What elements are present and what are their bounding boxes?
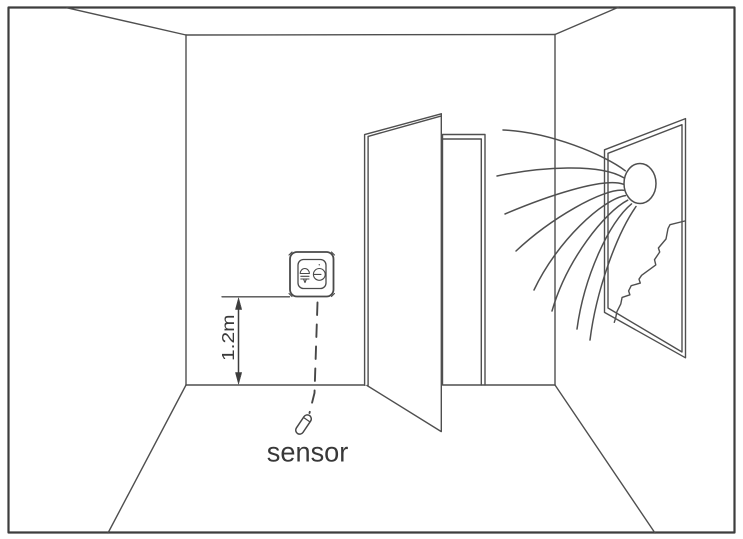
- svg-text:1.2m: 1.2m: [218, 315, 238, 362]
- svg-text:sensor: sensor: [267, 437, 349, 468]
